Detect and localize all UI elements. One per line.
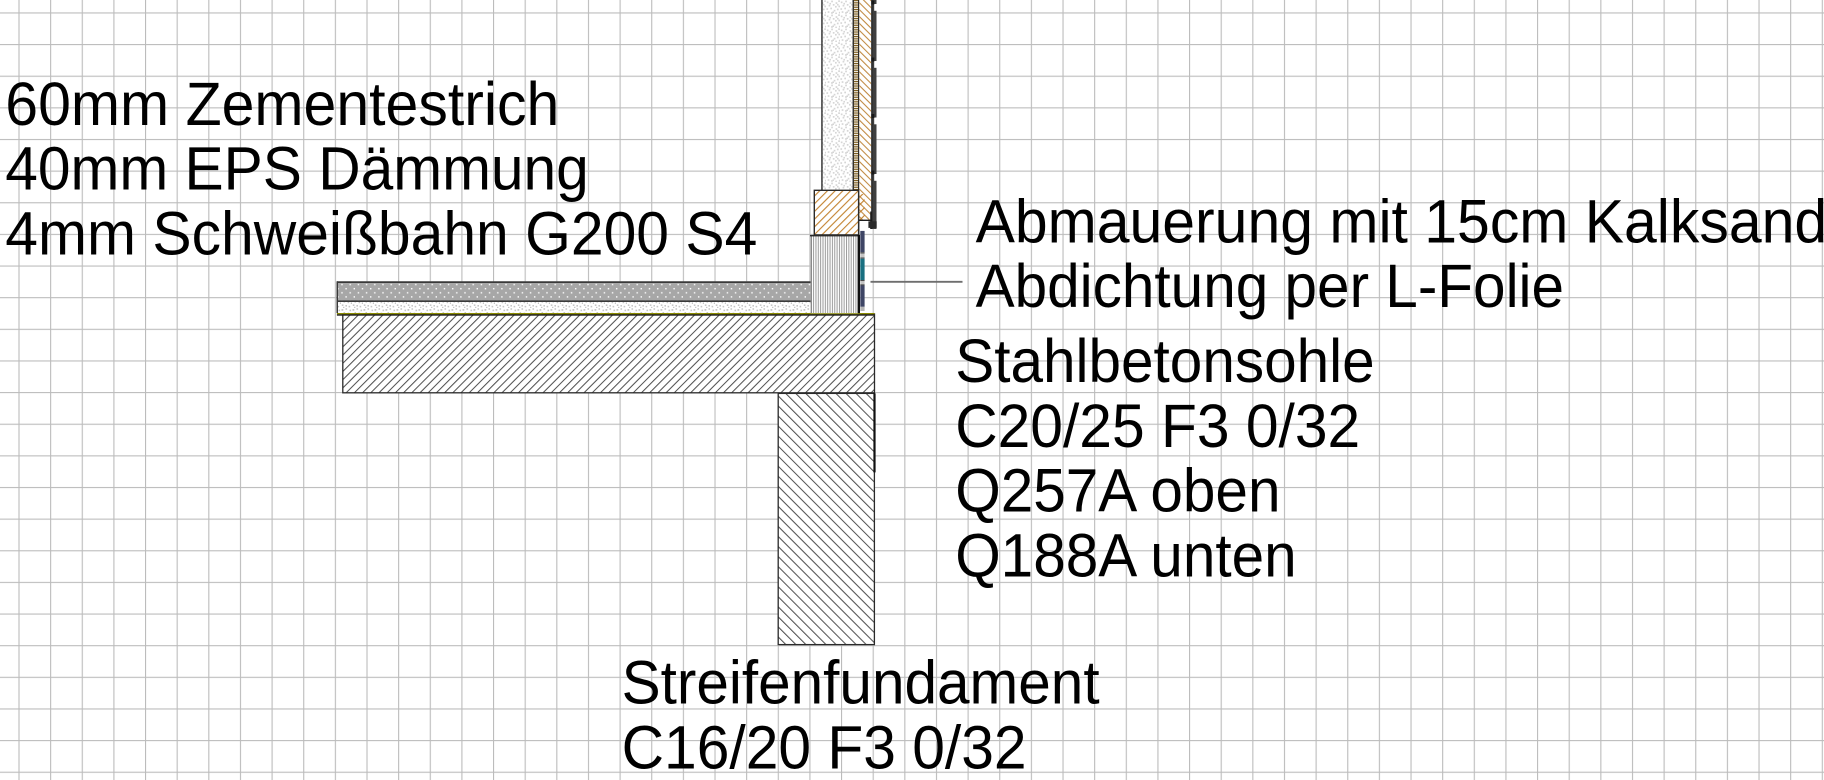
svg-text:Abmauerung mit 15cm Kalksandst: Abmauerung mit 15cm Kalksandstein [976, 187, 1824, 255]
svg-text:Abdichtung per L-Folie: Abdichtung per L-Folie [976, 252, 1565, 320]
svg-text:C20/25 F3 0/32: C20/25 F3 0/32 [955, 392, 1360, 460]
svg-text:40mm EPS Dämmung: 40mm EPS Dämmung [5, 135, 589, 203]
svg-text:4mm Schweißbahn G200 S4: 4mm Schweißbahn G200 S4 [5, 199, 757, 267]
svg-text:Stahlbetonsohle: Stahlbetonsohle [955, 327, 1374, 395]
svg-text:Q188A unten: Q188A unten [955, 522, 1296, 590]
svg-text:Streifenfundament: Streifenfundament [622, 649, 1100, 717]
svg-text:C16/20 F3 0/32: C16/20 F3 0/32 [622, 713, 1027, 780]
svg-text:60mm Zementestrich: 60mm Zementestrich [5, 70, 559, 138]
svg-text:Q257A oben: Q257A oben [955, 457, 1280, 525]
